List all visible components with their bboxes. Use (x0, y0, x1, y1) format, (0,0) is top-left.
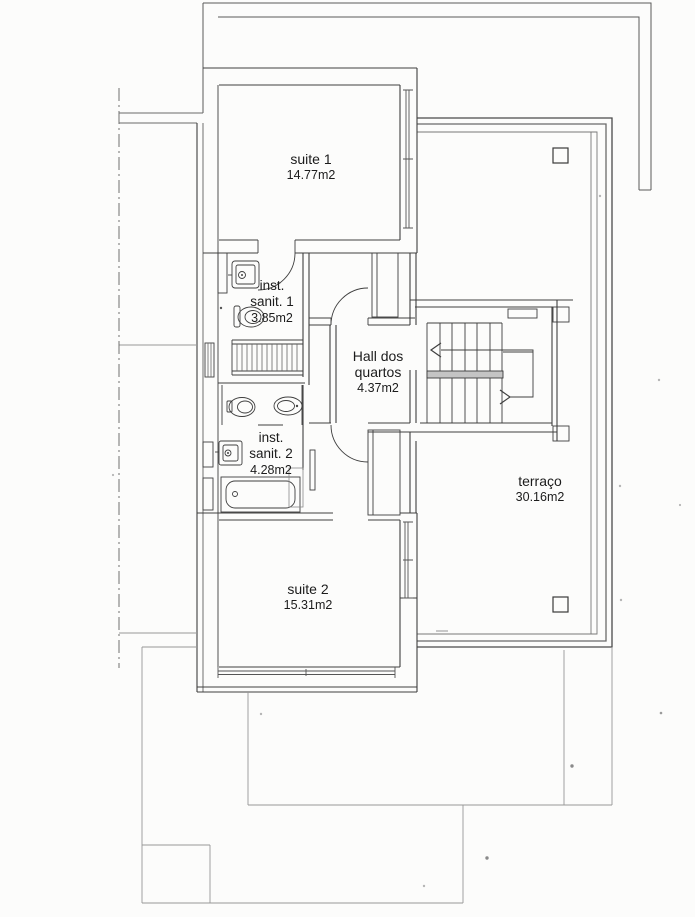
suite1-window (403, 90, 413, 228)
lower-floor-outline (119, 345, 612, 903)
room-name: quartos (353, 364, 404, 380)
terrace-column (553, 597, 568, 612)
stair-column (553, 307, 569, 322)
stair-handrail (427, 371, 503, 378)
room-label-sanit2: inst. sanit. 2 4.28m2 (249, 430, 293, 478)
room-name: sanit. 2 (249, 446, 293, 462)
room-name: suite 1 (287, 151, 336, 167)
room-label-terraco: terraço 30.16m2 (516, 473, 565, 505)
suite1-closet (372, 253, 398, 317)
bathtub-icon (221, 477, 300, 512)
suite2-window-right (403, 522, 413, 598)
radiator (310, 450, 315, 490)
terrace-balustrade (417, 118, 612, 647)
stair-down-arrow (500, 390, 510, 404)
staircase (410, 300, 573, 441)
suite2-window-bottom (218, 667, 395, 678)
room-area: 4.28m2 (249, 462, 293, 478)
room-area: 15.31m2 (284, 597, 333, 613)
room-name: Hall dos (353, 348, 404, 364)
shower-hatch (205, 340, 303, 377)
duct-shaft (218, 253, 227, 293)
terrace-column (553, 148, 568, 163)
room-label-sanit1: inst. sanit. 1 3.85m2 (250, 278, 294, 326)
exterior-walls (119, 85, 218, 692)
toilet-icon (274, 397, 302, 415)
room-name: suite 2 (284, 581, 333, 597)
room-label-suite2: suite 2 15.31m2 (284, 581, 333, 613)
room-name: terraço (516, 473, 565, 489)
room-area: 4.37m2 (353, 380, 404, 396)
room-label-hall: Hall dos quartos 4.37m2 (353, 348, 404, 396)
suite1-door-arc (331, 288, 368, 325)
stair-column (553, 426, 569, 441)
room-area: 3.85m2 (250, 310, 294, 326)
room-label-suite1: suite 1 14.77m2 (287, 151, 336, 183)
upper-roof-outline (203, 3, 651, 190)
floorplan-page: suite 1 14.77m2 inst. sanit. 1 3.85m2 Ha… (0, 0, 695, 917)
floorplan-drawing (0, 0, 695, 917)
room-name: inst. (250, 278, 294, 294)
room-name: sanit. 1 (250, 294, 294, 310)
room-area: 14.77m2 (287, 167, 336, 183)
stair-lintel (508, 309, 537, 318)
bidet-icon (227, 398, 255, 417)
left-window (203, 478, 213, 510)
sink-icon (215, 441, 242, 465)
lobby-closet (368, 430, 416, 515)
lobby-door-arc (331, 425, 368, 462)
stair-up-arrow (431, 343, 441, 357)
terrace-columns (553, 148, 568, 612)
left-window (203, 442, 213, 467)
room-area: 30.16m2 (516, 489, 565, 505)
room-name: inst. (249, 430, 293, 446)
